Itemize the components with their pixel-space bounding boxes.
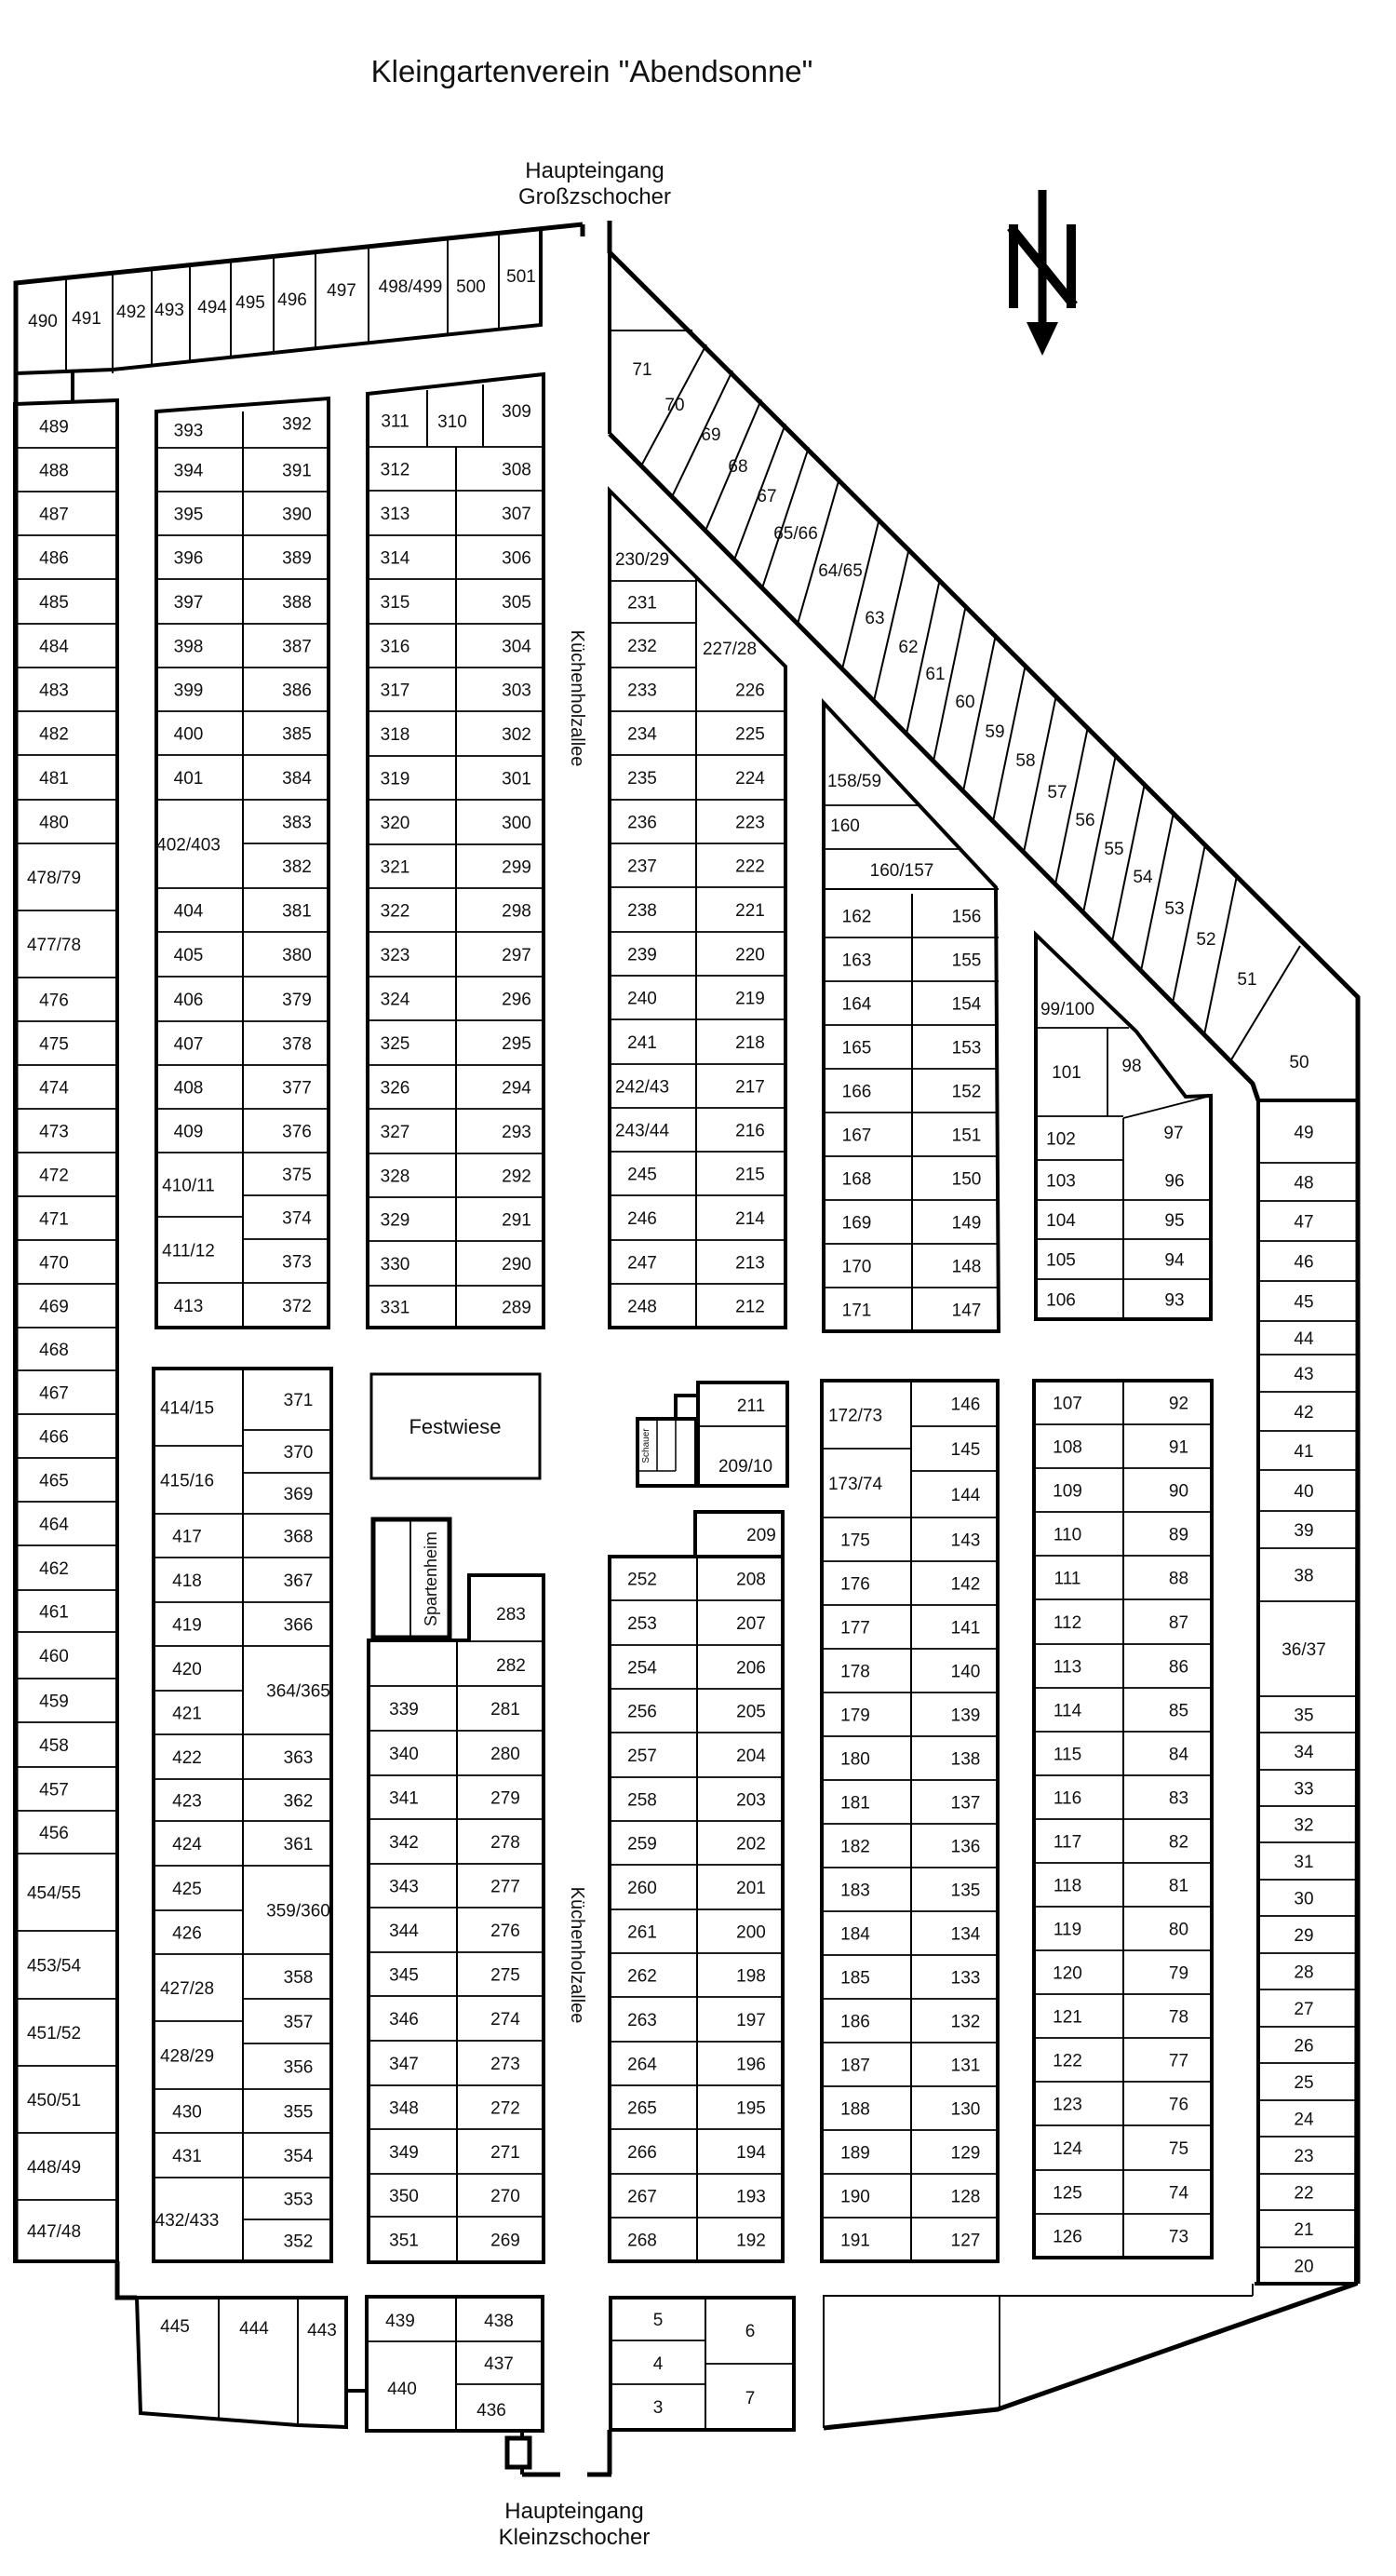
svg-text:305: 305 [502,593,531,613]
svg-text:124: 124 [1053,2139,1082,2159]
svg-text:252: 252 [627,1571,657,1590]
svg-text:38: 38 [1294,1567,1313,1586]
svg-text:451/52: 451/52 [27,2024,81,2043]
svg-text:113: 113 [1054,1658,1081,1678]
svg-text:73: 73 [1169,2228,1188,2247]
svg-text:126: 126 [1053,2228,1082,2247]
svg-text:21: 21 [1294,2220,1313,2240]
svg-text:358: 358 [284,1968,314,1988]
svg-text:476: 476 [39,991,69,1011]
svg-text:480: 480 [39,814,69,833]
svg-text:487: 487 [39,506,69,525]
svg-text:419: 419 [172,1616,202,1636]
svg-text:314: 314 [381,549,410,569]
svg-text:456: 456 [39,1824,69,1843]
svg-text:221: 221 [735,901,765,921]
svg-text:45: 45 [1294,1293,1313,1313]
svg-text:33: 33 [1294,1780,1313,1800]
svg-text:494: 494 [197,298,227,317]
svg-text:35: 35 [1294,1706,1313,1726]
svg-text:460: 460 [39,1647,69,1666]
svg-text:269: 269 [490,2232,520,2251]
svg-text:179: 179 [840,1706,870,1726]
svg-text:381: 381 [282,902,312,922]
svg-text:206: 206 [736,1659,766,1679]
svg-text:304: 304 [502,638,531,657]
svg-text:443: 443 [307,2321,337,2340]
svg-text:106: 106 [1046,1291,1076,1311]
svg-text:29: 29 [1294,1926,1313,1946]
svg-text:464: 464 [39,1516,69,1535]
svg-text:46: 46 [1294,1253,1313,1273]
svg-text:247: 247 [627,1254,657,1274]
svg-text:176: 176 [840,1575,870,1595]
svg-text:232: 232 [627,637,657,656]
svg-text:212: 212 [735,1298,765,1317]
svg-text:406: 406 [174,991,204,1010]
svg-text:309: 309 [502,402,531,422]
svg-text:138: 138 [951,1750,981,1770]
svg-text:209: 209 [746,1526,776,1545]
svg-text:389: 389 [282,549,312,569]
svg-text:89: 89 [1169,1526,1188,1545]
svg-text:88: 88 [1169,1570,1188,1589]
svg-text:325: 325 [381,1034,410,1054]
svg-text:175: 175 [840,1531,870,1551]
svg-text:387: 387 [282,638,312,657]
svg-text:77: 77 [1169,2052,1188,2071]
svg-text:488: 488 [39,462,69,481]
svg-text:264: 264 [627,2056,657,2075]
svg-text:4: 4 [653,2354,664,2374]
svg-text:263: 263 [627,2011,657,2030]
svg-text:43: 43 [1294,1365,1313,1384]
svg-text:52: 52 [1196,930,1215,950]
svg-text:6: 6 [745,2322,756,2341]
svg-text:300: 300 [502,814,531,833]
svg-text:298: 298 [502,902,531,922]
svg-text:362: 362 [284,1792,314,1812]
svg-text:411/12: 411/12 [162,1242,215,1261]
svg-text:81: 81 [1169,1877,1188,1896]
svg-text:123: 123 [1053,2096,1082,2115]
svg-text:84: 84 [1169,1746,1189,1765]
svg-text:202: 202 [736,1835,766,1854]
svg-text:78: 78 [1169,2008,1188,2028]
svg-text:128: 128 [951,2188,981,2207]
svg-text:216: 216 [735,1122,765,1141]
svg-text:166: 166 [842,1083,872,1102]
svg-text:183: 183 [840,1881,870,1901]
svg-text:271: 271 [490,2143,520,2163]
svg-text:239: 239 [627,946,657,965]
svg-text:322: 322 [381,902,410,922]
svg-text:23: 23 [1294,2147,1313,2166]
svg-text:401: 401 [174,769,204,789]
svg-text:458: 458 [39,1736,69,1756]
svg-text:373: 373 [282,1253,312,1273]
svg-text:386: 386 [282,681,312,701]
svg-text:440: 440 [387,2380,417,2399]
svg-text:490: 490 [28,312,58,331]
svg-text:474: 474 [39,1079,69,1099]
svg-text:468: 468 [39,1341,69,1360]
svg-text:215: 215 [735,1166,765,1185]
svg-text:453/54: 453/54 [27,1957,82,1976]
svg-text:195: 195 [736,2099,766,2119]
svg-text:3: 3 [653,2398,664,2418]
svg-text:225: 225 [735,725,765,745]
svg-text:233: 233 [627,681,657,701]
svg-text:83: 83 [1169,1789,1188,1809]
svg-text:436: 436 [477,2401,506,2421]
svg-text:24: 24 [1294,2111,1314,2130]
svg-text:450/51: 450/51 [27,2091,81,2111]
svg-text:111: 111 [1054,1570,1081,1589]
svg-text:86: 86 [1169,1658,1188,1678]
svg-text:54: 54 [1133,868,1153,887]
svg-text:143: 143 [951,1531,981,1551]
svg-text:132: 132 [951,2013,981,2032]
svg-text:205: 205 [736,1703,766,1722]
svg-text:257: 257 [627,1747,657,1766]
svg-text:41: 41 [1294,1442,1313,1462]
svg-text:101: 101 [1052,1063,1081,1083]
svg-text:146: 146 [951,1396,981,1415]
svg-text:148: 148 [952,1258,982,1277]
svg-text:351: 351 [389,2232,419,2251]
svg-text:234: 234 [627,725,657,745]
svg-text:185: 185 [840,1969,870,1989]
svg-text:369: 369 [284,1485,314,1504]
svg-text:388: 388 [282,593,312,613]
svg-text:408: 408 [174,1079,204,1099]
svg-text:290: 290 [502,1255,531,1275]
svg-text:136: 136 [951,1838,981,1857]
svg-text:500: 500 [456,277,486,297]
svg-text:240: 240 [627,990,657,1009]
svg-text:181: 181 [840,1794,870,1814]
svg-text:289: 289 [502,1299,531,1318]
svg-text:20: 20 [1294,2258,1313,2277]
svg-text:371: 371 [284,1391,314,1410]
svg-text:415/16: 415/16 [160,1472,214,1491]
svg-text:483: 483 [39,681,69,701]
svg-text:224: 224 [735,769,765,789]
svg-text:466: 466 [39,1428,69,1448]
svg-text:394: 394 [174,462,204,481]
svg-text:293: 293 [502,1123,531,1142]
svg-text:142: 142 [951,1575,981,1595]
svg-text:214: 214 [735,1209,765,1229]
svg-text:469: 469 [39,1298,69,1317]
svg-text:324: 324 [381,991,410,1010]
svg-text:131: 131 [951,2057,981,2076]
svg-text:282: 282 [496,1656,526,1676]
svg-text:345: 345 [389,1966,419,1986]
svg-text:432/433: 432/433 [155,2211,220,2231]
svg-text:296: 296 [502,991,531,1010]
svg-text:26: 26 [1294,2037,1313,2057]
svg-text:248: 248 [627,1298,657,1317]
svg-text:295: 295 [502,1034,531,1054]
svg-text:51: 51 [1237,970,1256,990]
svg-text:299: 299 [502,858,531,878]
svg-text:87: 87 [1169,1613,1188,1633]
svg-text:50: 50 [1289,1053,1309,1072]
svg-text:164: 164 [842,995,872,1015]
svg-text:273: 273 [490,2055,520,2074]
svg-text:30: 30 [1294,1890,1313,1909]
svg-text:58: 58 [1015,751,1035,771]
svg-text:28: 28 [1294,1963,1313,1983]
svg-text:120: 120 [1053,1964,1082,1984]
svg-text:343: 343 [389,1878,419,1897]
svg-text:67: 67 [757,487,776,506]
svg-text:265: 265 [627,2099,657,2119]
svg-text:227/28: 227/28 [703,640,757,659]
svg-text:268: 268 [627,2232,657,2251]
svg-text:350: 350 [389,2187,419,2206]
svg-text:44: 44 [1294,1329,1314,1349]
svg-text:104: 104 [1046,1211,1076,1231]
svg-text:117: 117 [1054,1833,1081,1853]
svg-text:151: 151 [952,1126,982,1146]
svg-text:444: 444 [239,2319,269,2339]
svg-text:208: 208 [736,1571,766,1590]
svg-text:426: 426 [172,1924,202,1944]
svg-text:74: 74 [1169,2184,1189,2204]
svg-text:186: 186 [840,2013,870,2032]
svg-text:201: 201 [736,1879,766,1898]
svg-text:258: 258 [627,1791,657,1811]
svg-text:154: 154 [952,995,982,1015]
svg-text:198: 198 [736,1967,766,1987]
svg-text:317: 317 [381,681,410,701]
svg-text:59: 59 [985,722,1004,742]
svg-text:424: 424 [172,1835,202,1854]
svg-text:133: 133 [951,1969,981,1989]
svg-text:457: 457 [39,1781,69,1801]
svg-text:323: 323 [381,946,410,965]
svg-text:303: 303 [502,681,531,701]
svg-text:169: 169 [842,1214,872,1234]
svg-text:301: 301 [502,770,531,789]
svg-text:354: 354 [284,2147,314,2166]
svg-text:42: 42 [1294,1403,1313,1423]
svg-text:93: 93 [1164,1291,1184,1311]
svg-text:312: 312 [381,461,410,480]
svg-text:182: 182 [840,1838,870,1857]
svg-text:390: 390 [282,506,312,525]
svg-text:385: 385 [282,725,312,745]
svg-text:139: 139 [951,1706,981,1726]
svg-text:108: 108 [1053,1438,1082,1458]
svg-text:235: 235 [627,769,657,789]
svg-text:326: 326 [381,1079,410,1099]
svg-text:62: 62 [898,638,918,657]
svg-text:242/43: 242/43 [615,1078,669,1098]
svg-text:267: 267 [627,2188,657,2207]
svg-text:48: 48 [1294,1174,1313,1194]
svg-text:361: 361 [284,1835,314,1854]
svg-text:281: 281 [490,1700,520,1720]
svg-text:302: 302 [502,725,531,745]
svg-text:279: 279 [490,1789,520,1809]
svg-text:270: 270 [490,2187,520,2206]
svg-text:5: 5 [653,2311,664,2330]
svg-text:321: 321 [381,858,410,878]
svg-text:261: 261 [627,1923,657,1943]
svg-text:417: 417 [172,1528,202,1547]
svg-text:462: 462 [39,1559,69,1579]
svg-text:147: 147 [952,1301,982,1321]
svg-text:80: 80 [1169,1921,1188,1940]
svg-text:492: 492 [116,303,146,322]
svg-text:391: 391 [282,462,312,481]
svg-text:76: 76 [1169,2096,1188,2115]
svg-text:427/28: 427/28 [160,1979,214,1999]
svg-text:366: 366 [284,1616,314,1636]
svg-text:467: 467 [39,1384,69,1404]
svg-text:484: 484 [39,638,69,657]
svg-text:243/44: 243/44 [615,1122,670,1141]
svg-text:405: 405 [174,946,204,965]
svg-text:230/29: 230/29 [615,550,669,570]
svg-text:470: 470 [39,1254,69,1274]
svg-text:310: 310 [437,412,467,432]
svg-text:200: 200 [736,1923,766,1943]
svg-text:71: 71 [632,360,651,380]
svg-text:316: 316 [381,638,410,657]
svg-text:156: 156 [952,908,982,927]
svg-text:116: 116 [1054,1789,1081,1809]
svg-text:297: 297 [502,946,531,965]
svg-text:475: 475 [39,1035,69,1055]
svg-text:364/365: 364/365 [266,1682,330,1702]
svg-text:238: 238 [627,901,657,921]
svg-text:144: 144 [951,1486,981,1505]
svg-text:219: 219 [735,990,765,1009]
svg-text:63: 63 [865,609,884,628]
svg-text:374: 374 [282,1209,312,1229]
svg-text:56: 56 [1075,811,1094,830]
svg-text:471: 471 [39,1210,69,1230]
svg-text:112: 112 [1054,1613,1081,1633]
svg-text:430: 430 [172,2103,202,2123]
svg-text:152: 152 [952,1083,982,1102]
svg-text:162: 162 [842,908,872,927]
svg-text:413: 413 [174,1297,204,1316]
svg-text:27: 27 [1294,2000,1313,2019]
svg-text:153: 153 [952,1039,982,1059]
svg-text:168: 168 [842,1170,872,1190]
svg-text:400: 400 [174,725,204,745]
svg-text:55: 55 [1104,840,1123,859]
svg-text:115: 115 [1054,1746,1081,1765]
svg-text:253: 253 [627,1614,657,1634]
svg-text:372: 372 [282,1297,312,1316]
svg-text:25: 25 [1294,2073,1313,2093]
svg-text:137: 137 [951,1794,981,1814]
svg-text:473: 473 [39,1123,69,1142]
svg-text:340: 340 [389,1745,419,1764]
svg-text:421: 421 [172,1705,202,1724]
svg-text:262: 262 [627,1967,657,1987]
svg-text:98: 98 [1121,1057,1141,1076]
svg-text:149: 149 [952,1214,982,1234]
svg-text:178: 178 [840,1663,870,1682]
svg-text:173/74: 173/74 [828,1475,883,1494]
svg-text:32: 32 [1294,1816,1313,1836]
svg-text:102: 102 [1046,1130,1076,1150]
svg-text:292: 292 [502,1167,531,1187]
svg-text:90: 90 [1169,1482,1188,1502]
svg-text:370: 370 [284,1443,314,1463]
svg-text:377: 377 [282,1079,312,1099]
svg-text:414/15: 414/15 [160,1399,214,1419]
svg-text:486: 486 [39,549,69,569]
svg-text:177: 177 [840,1619,870,1639]
svg-text:277: 277 [490,1878,520,1897]
svg-text:407: 407 [174,1035,204,1055]
svg-text:454/55: 454/55 [27,1884,81,1904]
svg-text:211: 211 [737,1396,765,1416]
svg-text:213: 213 [735,1254,765,1274]
svg-text:481: 481 [39,769,69,789]
svg-text:141: 141 [951,1619,981,1639]
svg-text:344: 344 [389,1922,419,1941]
svg-text:437: 437 [484,2354,514,2374]
svg-text:306: 306 [502,549,531,569]
svg-text:103: 103 [1046,1172,1076,1192]
svg-text:497: 497 [327,281,356,301]
svg-text:171: 171 [842,1301,872,1321]
svg-text:121: 121 [1053,2008,1082,2028]
svg-text:418: 418 [172,1571,202,1591]
svg-text:Küchenholzallee: Küchenholzallee [567,1887,587,2024]
svg-text:188: 188 [840,2100,870,2120]
svg-text:283: 283 [496,1605,526,1625]
svg-text:472: 472 [39,1167,69,1186]
svg-text:49: 49 [1294,1124,1313,1143]
svg-text:196: 196 [736,2056,766,2075]
svg-text:348: 348 [389,2099,419,2119]
svg-text:218: 218 [735,1033,765,1053]
svg-text:347: 347 [389,2055,419,2074]
svg-text:187: 187 [840,2057,870,2076]
svg-text:363: 363 [284,1748,314,1768]
svg-text:393: 393 [174,422,204,441]
svg-text:392: 392 [282,415,312,435]
svg-text:241: 241 [627,1033,657,1053]
svg-text:130: 130 [951,2100,981,2120]
svg-text:294: 294 [502,1079,531,1099]
svg-text:491: 491 [72,309,101,329]
svg-text:315: 315 [381,593,410,613]
svg-text:399: 399 [174,681,204,701]
svg-text:31: 31 [1294,1853,1313,1872]
svg-text:193: 193 [736,2188,766,2207]
svg-text:60: 60 [955,693,974,712]
svg-text:22: 22 [1294,2184,1313,2204]
svg-text:79: 79 [1169,1964,1188,1984]
svg-text:119: 119 [1054,1921,1081,1940]
svg-text:375: 375 [282,1166,312,1185]
svg-text:384: 384 [282,769,312,789]
svg-text:378: 378 [282,1035,312,1055]
svg-text:191: 191 [840,2232,870,2251]
